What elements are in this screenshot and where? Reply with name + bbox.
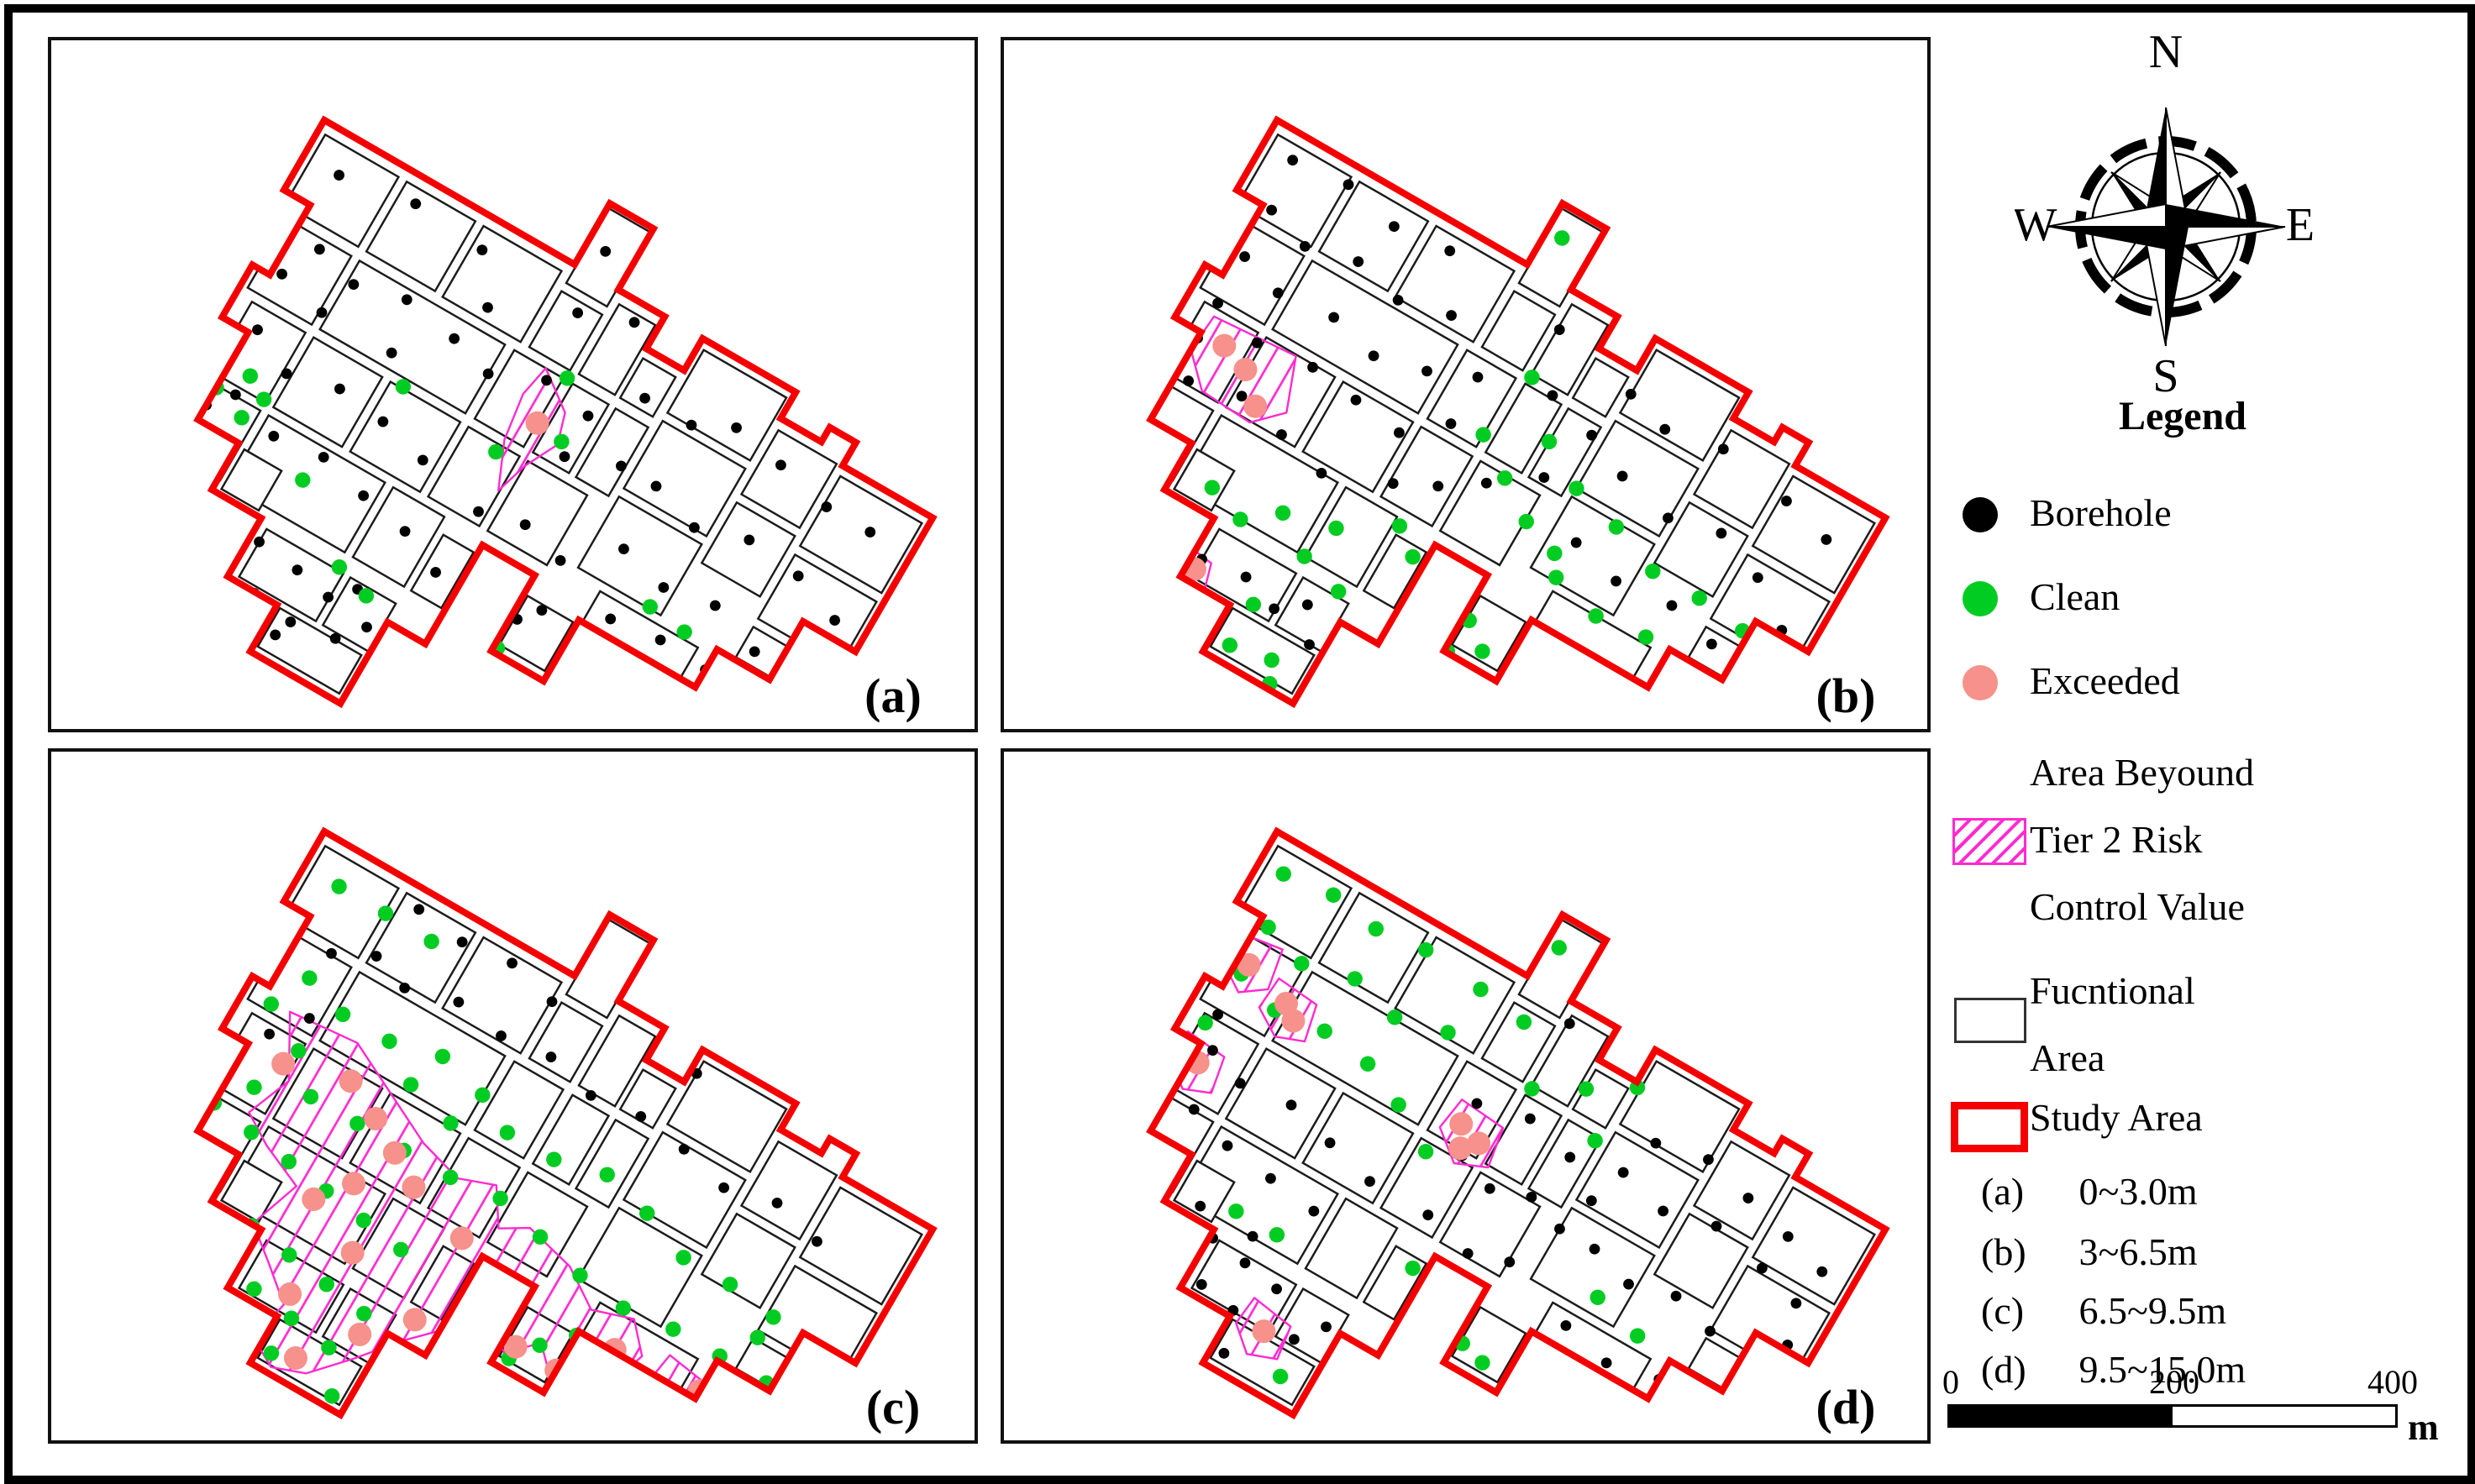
map-panel-c: (c) (48, 748, 978, 1444)
scale-tick-400: 400 (2367, 1362, 2418, 1402)
clean-label: Clean (2030, 574, 2120, 619)
exceeded-dot-icon (1963, 665, 1998, 700)
map-svg-b: (b) (1004, 40, 1927, 729)
tier2-hatch-swatch-icon (1952, 818, 2026, 865)
compass-rose-icon: N S W E (2015, 15, 2334, 410)
tier2-line-3: Control Value (2030, 873, 2254, 941)
depth-key-a: (a) (1981, 1169, 2069, 1214)
depth-key-b: (b) (1981, 1230, 2069, 1274)
tier2-label: Area Beyound Tier 2 Risk Control Value (2030, 739, 2254, 941)
panel-label-c: (c) (866, 1380, 920, 1434)
map-panel-d: (d) (1001, 748, 1931, 1444)
borehole-dot-icon (1963, 497, 1998, 532)
map-svg-a: (a) (51, 40, 975, 729)
depth-row-c: (c) 6.5~9.5m (1981, 1288, 2226, 1333)
exceeded-label: Exceeded (2030, 658, 2180, 703)
panel-label-d: (d) (1816, 1380, 1876, 1434)
map-svg-d: (d) (1004, 752, 1927, 1440)
borehole-label: Borehole (2030, 490, 2172, 535)
panel-label-a: (a) (864, 669, 922, 723)
scale-bar-rect (1947, 1404, 2398, 1428)
functional-line-2: Area (2030, 1025, 2195, 1092)
legend-title: Legend (2057, 393, 2309, 439)
depth-key-c: (c) (1981, 1288, 2069, 1333)
study-area-swatch-icon (1951, 1102, 2028, 1152)
scale-tick-200: 200 (2149, 1362, 2199, 1402)
compass-star (2047, 107, 2285, 346)
scale-bar-filled-half (1950, 1407, 2173, 1425)
functional-label: Fucntional Area (2030, 957, 2195, 1092)
depth-value-a: 0~3.0m (2079, 1170, 2198, 1213)
legend-column: N S W E Legend Borehole Clean Exceeded A… (1947, 0, 2460, 1483)
scale-unit-label: m (2408, 1406, 2439, 1449)
compass-north-label: N (2149, 26, 2183, 78)
depth-row-a: (a) 0~3.0m (1981, 1169, 2198, 1214)
functional-line-1: Fucntional (2030, 957, 2195, 1025)
map-svg-c: (c) (51, 752, 975, 1440)
depth-value-b: 3~6.5m (2079, 1230, 2198, 1273)
map-panel-b: (b) (1001, 37, 1931, 732)
functional-area-swatch-icon (1954, 998, 2026, 1043)
clean-dot-icon (1963, 581, 1998, 616)
scale-bar: 0 200 400 m (1947, 1362, 2460, 1428)
scale-bar-ticks: 0 200 400 (1947, 1362, 2460, 1403)
depth-row-b: (b) 3~6.5m (1981, 1230, 2198, 1274)
compass-west-label: W (2015, 199, 2057, 251)
map-panel-a: (a) (48, 37, 978, 732)
compass-east-label: E (2286, 199, 2315, 251)
study-area-label: Study Area (2030, 1095, 2203, 1140)
depth-value-c: 6.5~9.5m (2079, 1289, 2227, 1332)
scale-tick-0: 0 (1942, 1362, 1959, 1402)
tier2-line-1: Area Beyound (2030, 739, 2254, 806)
tier2-line-2: Tier 2 Risk (2030, 806, 2254, 873)
panel-label-b: (b) (1816, 669, 1876, 723)
